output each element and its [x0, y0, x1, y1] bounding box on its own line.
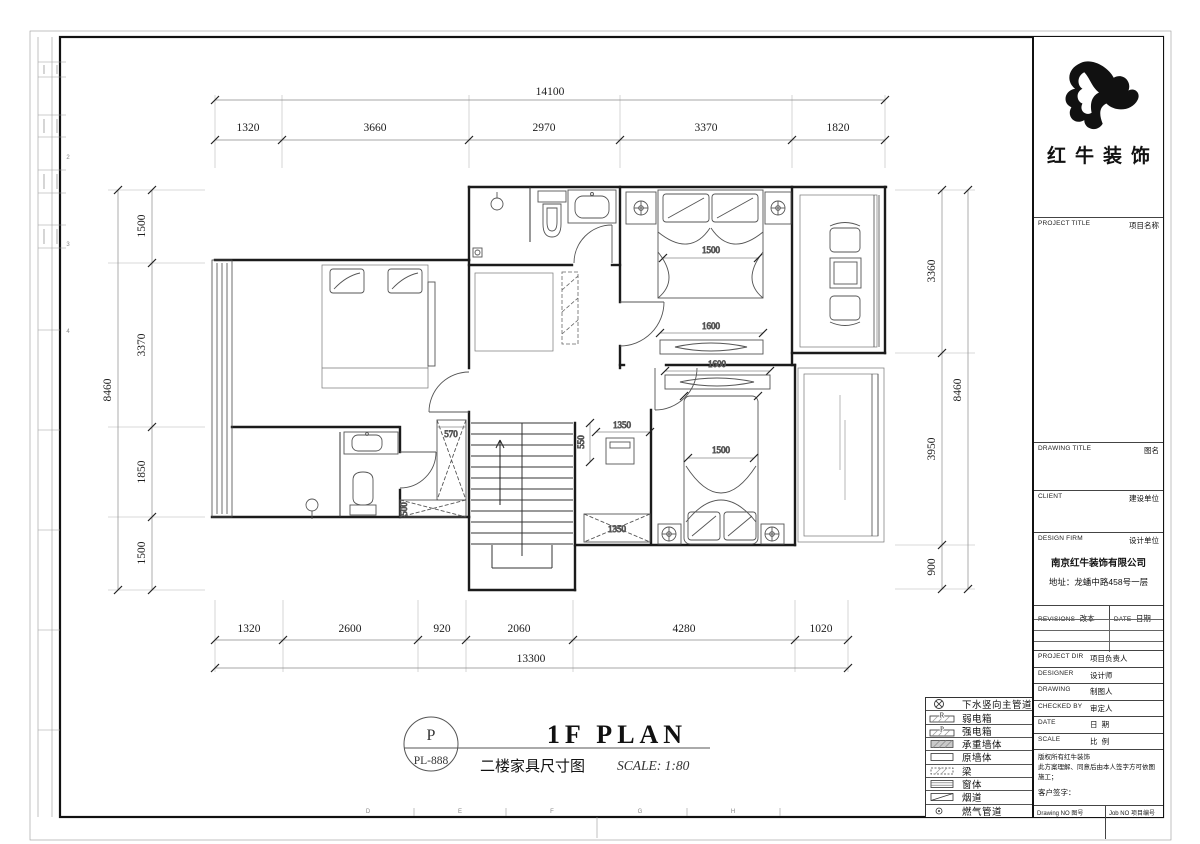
title-block-revisions: REVISIONS 改本 DATE 日期 — [1034, 605, 1163, 650]
company-name: 南京红牛装饰有限公司 — [1034, 555, 1163, 569]
field-label-en: DRAWING — [1038, 686, 1090, 700]
study-nook: 550 1350 1350 — [576, 419, 654, 542]
dim-text: 13300 — [517, 653, 546, 665]
title-block-client: CLIENT 建设单位 — [1034, 490, 1163, 532]
exterior-walls — [212, 187, 886, 590]
dim-text: 1500 — [702, 245, 721, 255]
lamp-icon — [771, 201, 785, 215]
dim-chain-left: 8460 1500 3370 1850 1500 — [102, 186, 156, 594]
legend: 下水竖向主管道 R 弱电箱 P 强电箱 承重墙体 原墙体 — [925, 697, 1032, 817]
dimension-extension-lines — [108, 95, 975, 672]
dim-chain-right: 3360 3950 900 8460 — [926, 186, 972, 593]
dim-text: 570 — [444, 429, 458, 439]
legend-label: 承重墙体 — [962, 737, 1002, 751]
plan-title-scale: SCALE: 1:80 — [617, 758, 690, 773]
grid-number: 4 — [66, 329, 70, 335]
title-block-date: DATE 日 期 — [1034, 716, 1163, 733]
legend-label: 烟道 — [962, 790, 982, 804]
field-label-zh: 建设单位 — [1129, 493, 1159, 504]
field-label-zh: 图名 — [1144, 445, 1159, 456]
terrace-chair — [830, 296, 860, 326]
dim-text: 2970 — [533, 122, 556, 134]
grid-letter: E — [458, 809, 462, 815]
dim-text: 3950 — [926, 437, 938, 460]
field-label-zh: 项目名称 — [1129, 220, 1159, 231]
lamp-icon — [662, 527, 676, 541]
grid-letter: D — [366, 809, 371, 815]
title-block-project-dir: PROJECT DIR 项目负责人 — [1034, 650, 1163, 667]
bedroom-topright: 1500 1600 — [626, 190, 791, 354]
bedroom-topleft — [322, 265, 435, 388]
title-block-scale: SCALE 比 例 — [1034, 733, 1163, 750]
field-label-en: CHECKED BY — [1038, 703, 1090, 717]
plan-code-bottom: PL-888 — [414, 755, 449, 767]
dim-text: 3370 — [695, 122, 718, 134]
strong-current-box-icon: P — [926, 725, 962, 737]
company-address: 地址：龙蟠中路458号一层 — [1034, 576, 1163, 588]
legend-label: 强电箱 — [962, 724, 992, 738]
field-label-zh: 审定人 — [1090, 703, 1159, 717]
dim-text: 8460 — [102, 378, 114, 401]
wardrobe-slider — [428, 282, 435, 366]
gas-pipe-icon — [926, 805, 962, 817]
field-label-zh: 设计师 — [1090, 670, 1159, 684]
dim-chain-top: 14100 1320 3660 2970 3370 1820 — [211, 86, 889, 144]
legend-label: 下水竖向主管道 — [962, 697, 1032, 711]
plan-code-top: P — [427, 727, 436, 744]
legend-row: 原墙体 — [926, 751, 1032, 764]
dim-text: 1500 — [712, 445, 731, 455]
sink-icon — [568, 190, 616, 223]
title-block: 红牛装饰 PROJECT TITLE 项目名称 DRAWING TITLE 图名… — [1032, 37, 1163, 817]
legend-label: 燃气管道 — [962, 804, 1002, 818]
door-bedroom-topright — [620, 302, 664, 346]
lamp-icon — [765, 527, 779, 541]
closet-horizontal: 500 — [399, 500, 466, 517]
dim-text: 3370 — [136, 333, 148, 356]
title-block-drawing-title: DRAWING TITLE 图名 — [1034, 442, 1163, 490]
grid-letter: H — [731, 809, 735, 815]
grid-number: 2 — [66, 155, 70, 161]
title-block-designer: DESIGNER 设计师 — [1034, 667, 1163, 684]
legend-row: 梁 — [926, 765, 1032, 778]
revision-row — [1034, 630, 1163, 641]
drain-riser-icon — [926, 698, 962, 710]
dim-chain-bottom: 1320 2600 920 2060 4280 1020 13300 — [211, 623, 852, 672]
company-logo-icon — [1053, 59, 1145, 137]
tv-cabinet — [665, 375, 770, 389]
dim-text: 900 — [926, 558, 938, 576]
title-block-project-title: PROJECT TITLE 项目名称 — [1034, 217, 1163, 442]
dim-text: 1500 — [136, 541, 148, 564]
bathroom-bottom — [306, 432, 398, 519]
field-label-en: SCALE — [1038, 736, 1090, 750]
dim-text: 1020 — [810, 623, 833, 635]
field-label-en: PROJECT DIR — [1038, 653, 1090, 667]
legend-symbol-letter: R — [940, 712, 945, 720]
title-block-design-firm: DESIGN FIRM 设计单位 南京红牛装饰有限公司 地址：龙蟠中路458号一… — [1034, 532, 1163, 605]
title-block-drawing-by: DRAWING 制图人 — [1034, 683, 1163, 700]
door-bathroom-top — [574, 225, 612, 263]
dim-text: 1500 — [136, 214, 148, 237]
dim-text: 14100 — [536, 86, 565, 98]
pillow — [330, 269, 364, 293]
pillow — [663, 194, 709, 222]
legend-row: 烟道 — [926, 791, 1032, 804]
door-bedroom-left — [429, 372, 469, 412]
closet-vertical: 570 — [437, 420, 466, 500]
dim-text: 1320 — [238, 623, 261, 635]
title-block-numbers: Drawing NO 图号 Job NO 项目编号 — [1034, 805, 1163, 839]
dim-text: 4280 — [673, 623, 696, 635]
field-label-zh: 设计单位 — [1129, 535, 1159, 546]
bedroom-bottomright: 1600 1500 — [658, 359, 784, 544]
floor-drain-icon — [473, 248, 482, 257]
dim-text: 2600 — [339, 623, 362, 635]
dim-text: 2060 — [508, 623, 531, 635]
legend-row: R 弱电箱 — [926, 711, 1032, 724]
client-sign-label: 客户签字： — [1038, 787, 1159, 798]
lamp-icon — [634, 201, 648, 215]
grid-letter: F — [550, 809, 554, 815]
job-no-label-zh: 项目编号 — [1131, 811, 1155, 817]
window-icon — [926, 778, 962, 790]
terrace-chair — [830, 223, 860, 253]
field-label-zh: 日 期 — [1090, 719, 1159, 733]
toilet-icon — [350, 472, 376, 515]
company-logo-name: 红牛装饰 — [1034, 141, 1163, 168]
staircase — [471, 423, 573, 568]
dim-text: 1350 — [608, 524, 627, 534]
terrace — [800, 195, 879, 347]
field-label-zh: 项目负责人 — [1090, 653, 1159, 667]
pillow — [688, 512, 720, 540]
field-label-en: DATE — [1038, 719, 1090, 733]
balcony-left-window — [212, 260, 232, 517]
legend-label: 原墙体 — [962, 750, 992, 764]
toilet-icon — [538, 191, 566, 237]
dim-text: 1320 — [237, 122, 260, 134]
job-no-label-en: Job NO — [1109, 811, 1129, 817]
dim-text: 920 — [433, 623, 451, 635]
weak-current-box-icon: R — [926, 711, 962, 723]
legend-label: 弱电箱 — [962, 711, 992, 725]
field-label-zh: 制图人 — [1090, 686, 1159, 700]
legend-symbol-letter: P — [940, 725, 944, 733]
plan-title-group: P PL-888 1F PLAN 二楼家具尺寸图 SCALE: 1:80 — [404, 717, 710, 775]
pillow — [388, 269, 422, 293]
grid-number: 3 — [66, 242, 70, 248]
legend-row: 燃气管道 — [926, 805, 1032, 818]
title-block-logo-section: 红牛装饰 — [1034, 59, 1163, 217]
legend-label: 窗体 — [962, 777, 982, 791]
legend-row: P 强电箱 — [926, 725, 1032, 738]
field-label-en: DESIGNER — [1038, 670, 1090, 684]
wardrobe-x: 1350 — [584, 514, 650, 542]
title-block-copyright: 版权所有红牛装饰 此方案理解、同意后由本人签字方可依图施工； 客户签字： — [1034, 749, 1163, 805]
dim-text: 1600 — [702, 321, 721, 331]
dim-text: 1600 — [708, 359, 727, 369]
legend-label: 梁 — [962, 764, 972, 778]
drawing-no-label-zh: 图号 — [1071, 811, 1083, 817]
title-block-checked-by: CHECKED BY 审定人 — [1034, 700, 1163, 717]
copyright-line: 版权所有红牛装饰 — [1038, 753, 1159, 763]
original-wall-icon — [926, 751, 962, 763]
field-label-en: DESIGN FIRM — [1038, 535, 1083, 546]
desk — [606, 438, 634, 464]
field-label-en: PROJECT TITLE — [1038, 220, 1090, 231]
balcony-right — [798, 368, 884, 542]
legend-row: 承重墙体 — [926, 738, 1032, 751]
beam-icon — [926, 765, 962, 777]
flue-icon — [926, 791, 962, 803]
dim-text: 550 — [576, 435, 586, 449]
bearing-wall-icon — [926, 738, 962, 750]
stair-direction-arrow — [496, 440, 504, 505]
dim-text: 1820 — [827, 122, 850, 134]
shower-head-icon — [491, 192, 503, 210]
hall-void — [475, 273, 553, 351]
copyright-line: 此方案理解、同意后由本人签字方可依图施工； — [1038, 763, 1159, 783]
beam-flue — [562, 272, 578, 344]
field-label-en: CLIENT — [1038, 493, 1062, 504]
door-bathroom-bottom — [400, 452, 436, 488]
tv-cabinet — [660, 340, 763, 354]
drawing-sheet: D E F G H 1 2 3 4 5 6 7 8 9 2 3 4 — [0, 0, 1200, 844]
dim-text: 3360 — [926, 259, 938, 282]
dim-text: 3660 — [364, 122, 387, 134]
plan-title-sub: 二楼家具尺寸图 — [480, 758, 585, 775]
legend-row: 下水竖向主管道 — [926, 698, 1032, 711]
pillow — [712, 194, 758, 222]
dim-text: 1850 — [136, 460, 148, 483]
revision-row — [1034, 619, 1163, 630]
grid-letter: G — [638, 809, 643, 815]
dim-text: 500 — [399, 502, 409, 516]
legend-row: 窗体 — [926, 778, 1032, 791]
plan-title-main: 1F PLAN — [547, 720, 687, 749]
field-label-zh: 比 例 — [1090, 736, 1159, 750]
field-label-en: DRAWING TITLE — [1038, 445, 1091, 456]
terrace-table — [830, 258, 861, 288]
sink-icon — [344, 432, 398, 454]
drawing-no-label-en: Drawing NO — [1037, 811, 1070, 817]
bathroom-top — [473, 190, 616, 257]
dim-text: 8460 — [952, 378, 964, 401]
dim-text: 1350 — [613, 420, 632, 430]
strip-text-marks — [44, 65, 57, 244]
